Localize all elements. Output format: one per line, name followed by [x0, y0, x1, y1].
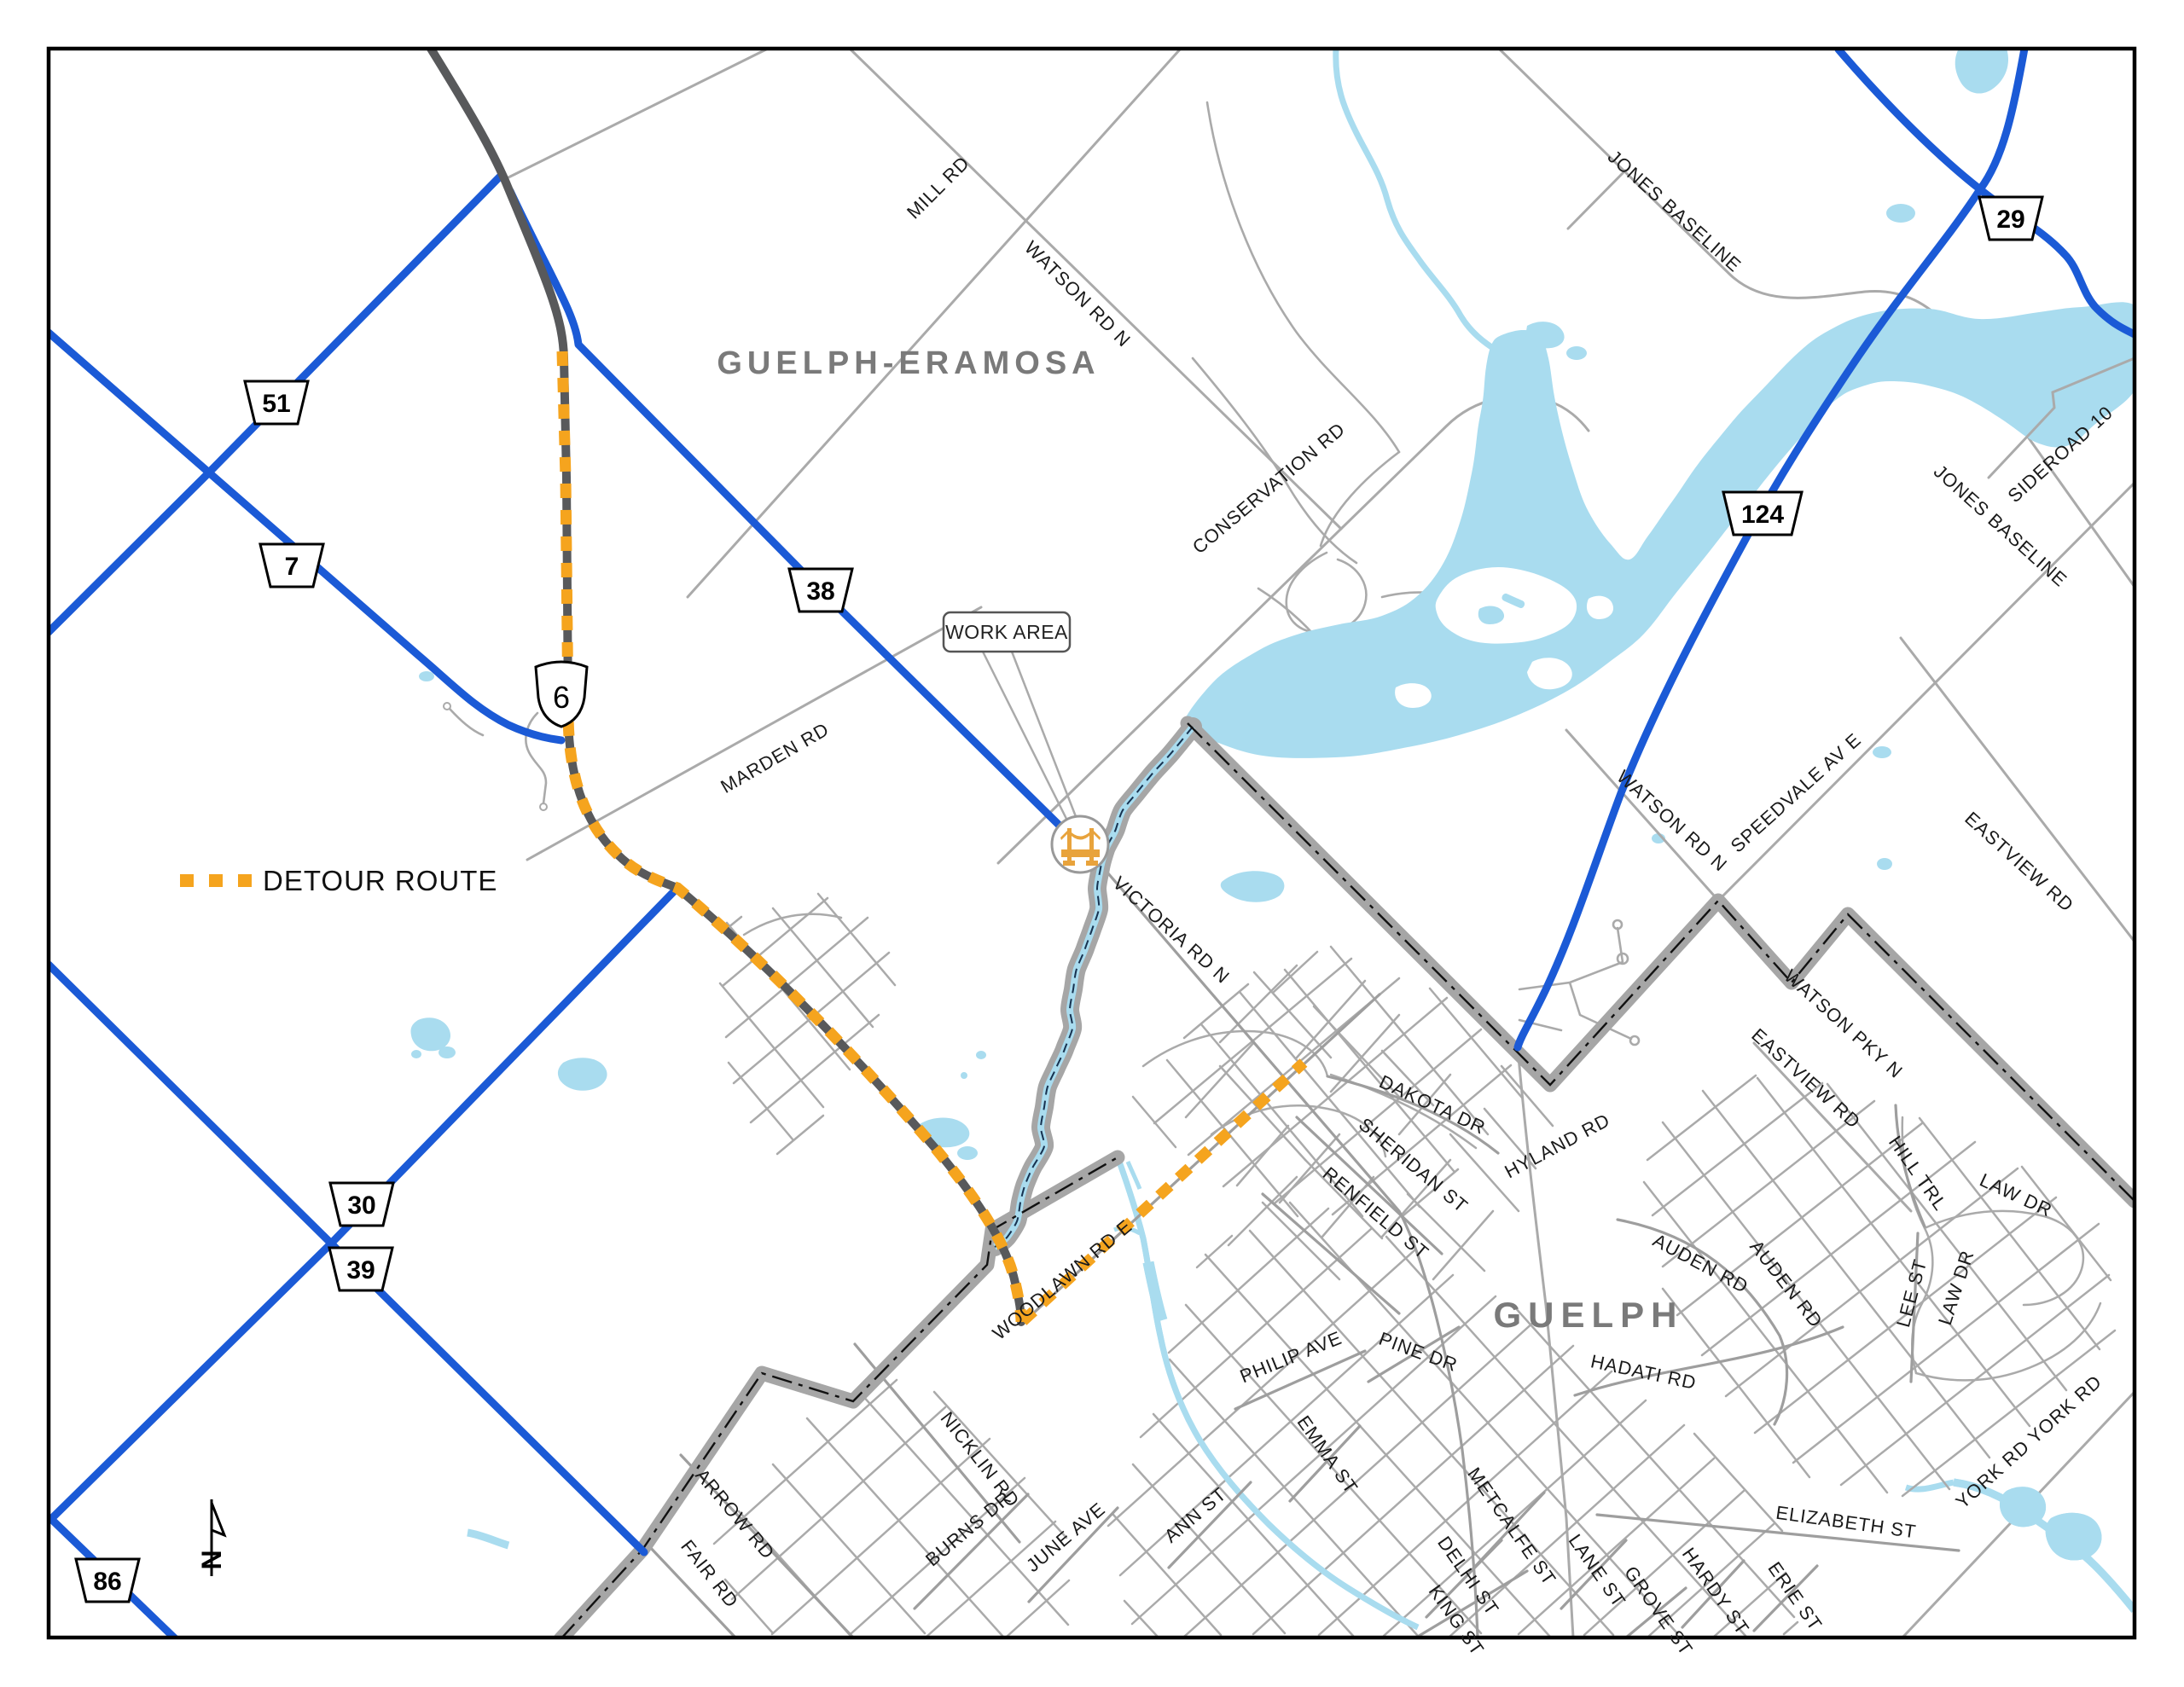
svg-text:124: 124 [1741, 501, 1784, 529]
svg-text:7: 7 [285, 553, 299, 581]
svg-text:GUELPH: GUELPH [1493, 1295, 1683, 1335]
svg-text:30: 30 [347, 1191, 375, 1220]
svg-text:GUELPH-ERAMOSA: GUELPH-ERAMOSA [717, 345, 1100, 381]
svg-text:38: 38 [806, 577, 834, 606]
svg-text:WORK AREA: WORK AREA [945, 621, 1068, 643]
svg-text:51: 51 [262, 390, 290, 418]
svg-text:29: 29 [1996, 206, 2024, 234]
svg-text:N: N [196, 1550, 227, 1569]
svg-text:DETOUR ROUTE: DETOUR ROUTE [263, 865, 497, 896]
svg-text:86: 86 [93, 1568, 121, 1596]
svg-text:6: 6 [553, 680, 570, 715]
svg-text:39: 39 [346, 1256, 375, 1284]
